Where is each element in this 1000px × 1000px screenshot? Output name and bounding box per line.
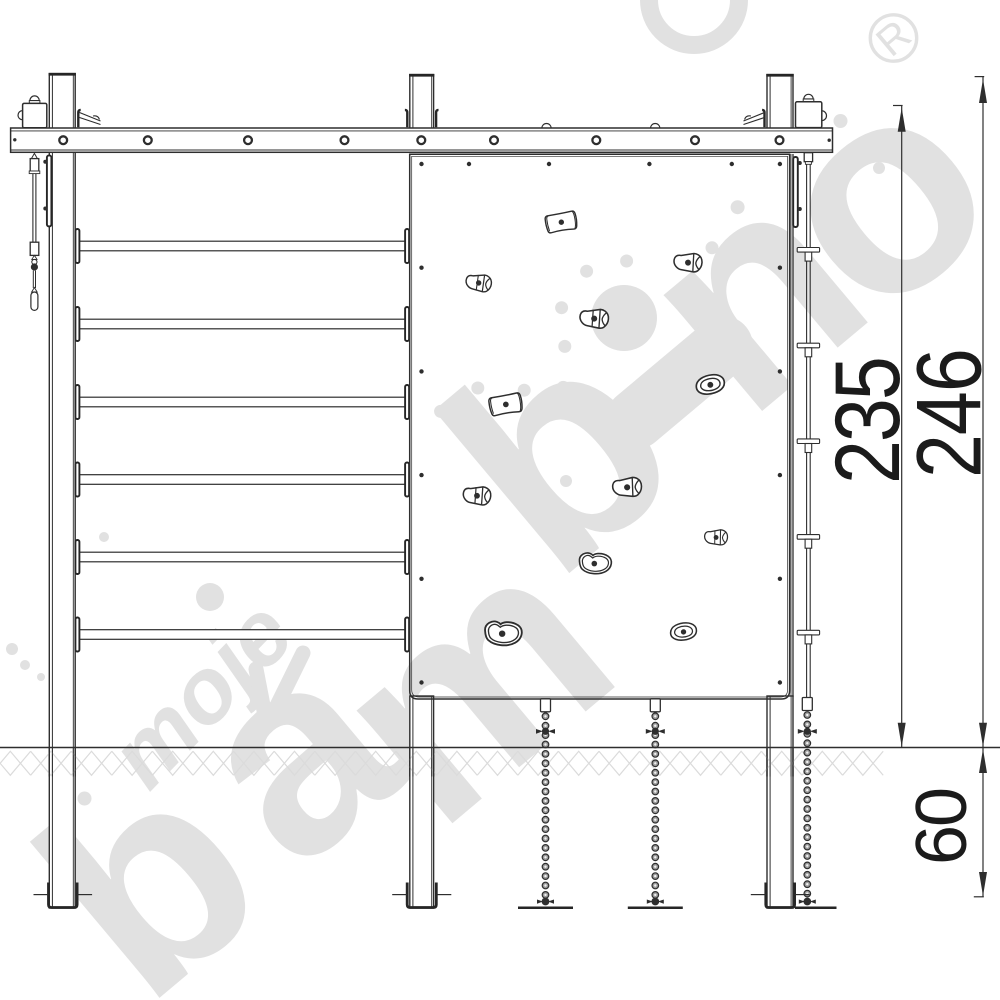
svg-text:60: 60 bbox=[902, 789, 982, 865]
svg-text:246: 246 bbox=[899, 349, 1000, 478]
